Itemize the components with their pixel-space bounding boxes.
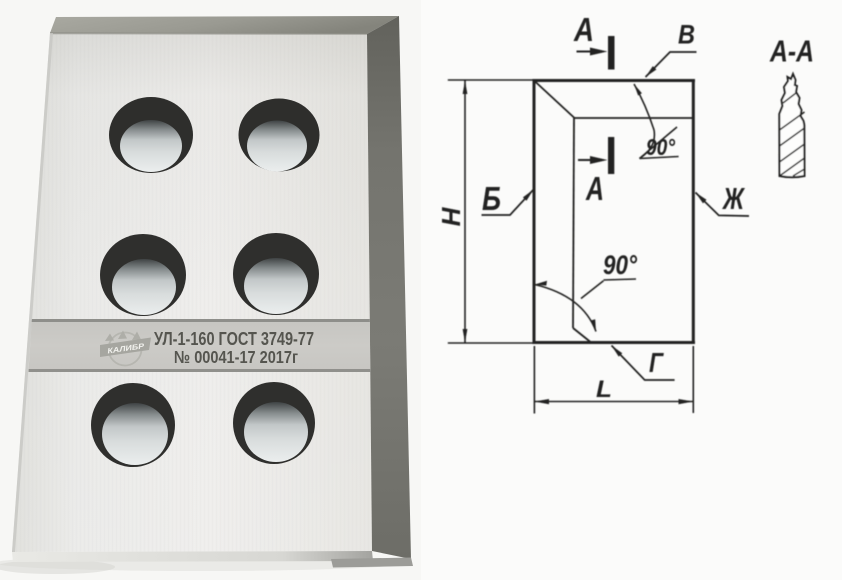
svg-text:А-А: А-А <box>769 34 814 69</box>
svg-text:В: В <box>678 20 695 50</box>
svg-text:Б: Б <box>482 180 501 217</box>
svg-text:Н: Н <box>436 206 466 226</box>
svg-text:А: А <box>585 170 604 207</box>
svg-text:УЛ-1-160 ГОСТ 3749-77: УЛ-1-160 ГОСТ 3749-77 <box>154 329 314 349</box>
svg-text:L: L <box>596 376 612 403</box>
svg-text:А: А <box>573 11 594 48</box>
svg-text:90°: 90° <box>603 250 637 280</box>
svg-text:Ж: Ж <box>722 181 746 216</box>
svg-text:№ 00041-17 2017г: № 00041-17 2017г <box>174 347 298 367</box>
svg-text:Г: Г <box>649 347 664 378</box>
